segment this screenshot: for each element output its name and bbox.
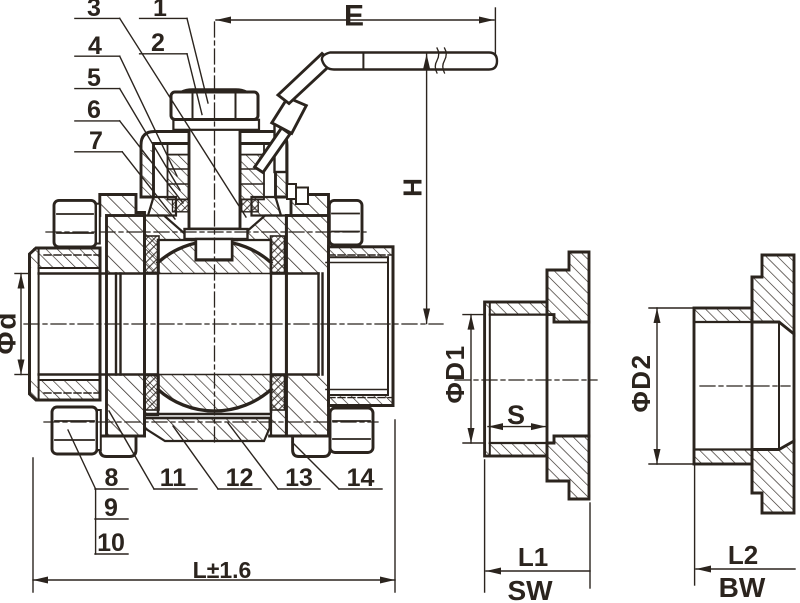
- svg-text:2: 2: [151, 29, 165, 57]
- svg-text:H: H: [398, 178, 428, 197]
- svg-text:6: 6: [87, 96, 101, 124]
- svg-text:L2: L2: [728, 540, 758, 570]
- svg-text:14: 14: [347, 464, 375, 492]
- svg-text:ΦD2: ΦD2: [626, 353, 656, 412]
- svg-text:L1: L1: [518, 542, 548, 572]
- svg-text:BW: BW: [719, 572, 766, 603]
- svg-text:SW: SW: [507, 575, 553, 603]
- svg-text:S: S: [507, 400, 525, 430]
- svg-text:4: 4: [88, 32, 102, 60]
- svg-text:ΦD1: ΦD1: [440, 344, 470, 403]
- svg-text:10: 10: [97, 529, 125, 557]
- svg-text:13: 13: [285, 464, 313, 492]
- svg-text:Φd: Φd: [0, 310, 22, 354]
- svg-text:L±1.6: L±1.6: [193, 557, 252, 583]
- svg-text:8: 8: [105, 464, 119, 492]
- svg-text:1: 1: [153, 0, 167, 22]
- svg-text:5: 5: [87, 64, 101, 92]
- svg-text:3: 3: [87, 0, 101, 22]
- svg-text:7: 7: [89, 127, 103, 155]
- svg-text:9: 9: [104, 494, 118, 522]
- svg-text:11: 11: [160, 464, 187, 492]
- svg-text:12: 12: [226, 464, 254, 492]
- svg-text:E: E: [344, 0, 364, 33]
